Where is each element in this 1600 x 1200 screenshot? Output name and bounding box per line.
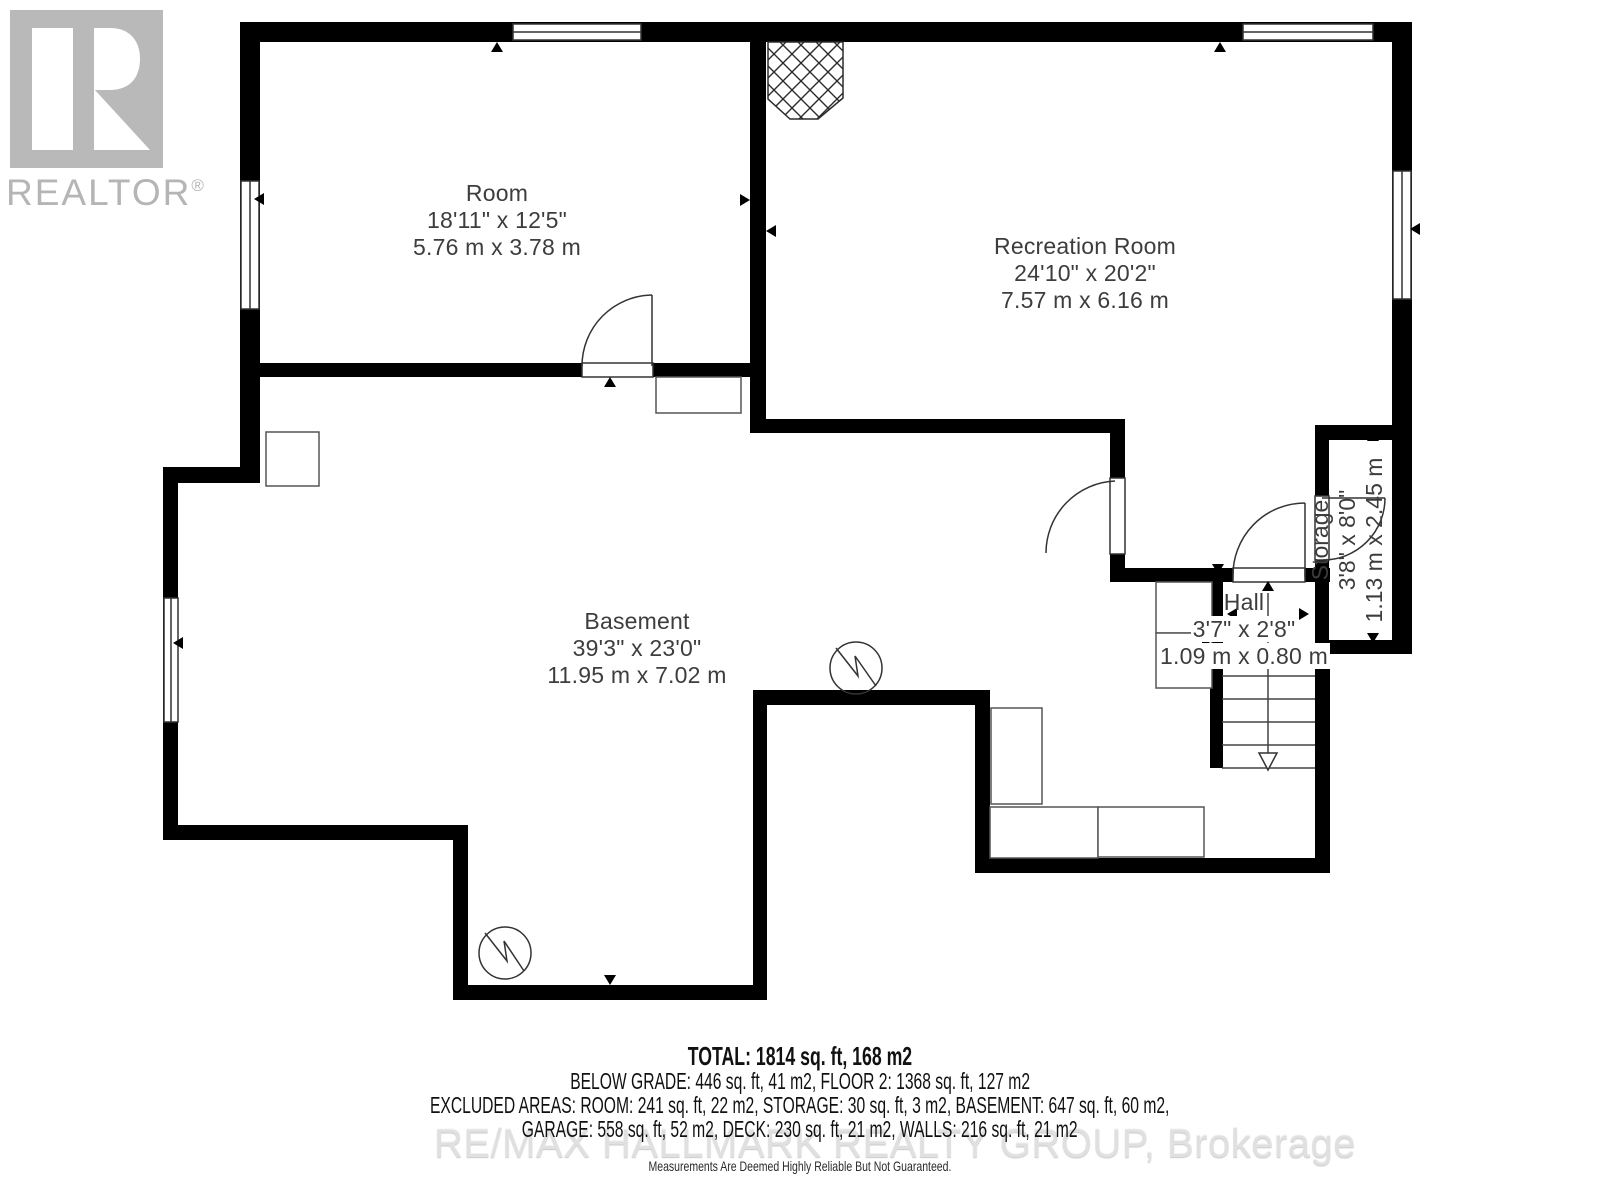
door bbox=[1233, 503, 1305, 582]
registered-trademark-icon: ® bbox=[191, 176, 204, 195]
room-name: Recreation Room bbox=[935, 233, 1235, 260]
door bbox=[582, 295, 653, 377]
room-dim-ft: 24'10" x 20'2" bbox=[935, 260, 1235, 287]
summary-below-grade: BELOW GRADE: 446 sq. ft, 41 m2, FLOOR 2:… bbox=[0, 1070, 1600, 1094]
wall-segment bbox=[163, 825, 468, 840]
fireplace-icon bbox=[768, 42, 843, 119]
fixture-box bbox=[990, 807, 1098, 858]
room-name: Storage bbox=[1307, 430, 1334, 650]
realtor-logo bbox=[10, 10, 163, 168]
wall-segment bbox=[750, 419, 1125, 433]
room-dim-m: 1.13 m x 2.45 m bbox=[1361, 430, 1388, 650]
wall-segment bbox=[240, 22, 1412, 42]
area-summary: TOTAL: 1814 sq. ft, 168 m2 BELOW GRADE: … bbox=[0, 1043, 1600, 1142]
wall-segment bbox=[753, 690, 767, 1000]
room-dim-m: 5.76 m x 3.78 m bbox=[347, 234, 647, 261]
fixture-box bbox=[266, 432, 319, 486]
marker bbox=[1214, 42, 1226, 52]
wall-segment bbox=[1315, 653, 1330, 873]
wall-segment bbox=[753, 690, 990, 705]
room-dim-ft: 3'8" x 8'0" bbox=[1334, 430, 1361, 650]
storage-label: Storage 3'8" x 8'0" 1.13 m x 2.45 m bbox=[1307, 430, 1391, 650]
marker bbox=[604, 377, 616, 387]
realtor-wordmark: REALTOR® bbox=[6, 172, 246, 214]
room-name: Room bbox=[347, 180, 647, 207]
realtor-wordmark-text: REALTOR bbox=[6, 172, 191, 213]
doors bbox=[582, 295, 1385, 582]
room-dim-ft: 39'3" x 23'0" bbox=[487, 635, 787, 662]
fixture-box bbox=[656, 377, 741, 413]
room-dim-ft: 18'11" x 12'5" bbox=[347, 207, 647, 234]
marker bbox=[491, 42, 503, 52]
summary-excluded: EXCLUDED AREAS: ROOM: 241 sq. ft, 22 m2,… bbox=[0, 1094, 1600, 1118]
pump-icon bbox=[479, 927, 531, 979]
fixture-box bbox=[991, 708, 1042, 804]
summary-excluded-2: GARAGE: 558 sq. ft, 52 m2, DECK: 230 sq.… bbox=[0, 1118, 1600, 1142]
wall-segment bbox=[453, 985, 767, 1000]
wall-segment bbox=[975, 858, 1330, 873]
window bbox=[513, 24, 641, 40]
wall-segment bbox=[250, 363, 755, 377]
summary-total: TOTAL: 1814 sq. ft, 168 m2 bbox=[0, 1043, 1600, 1070]
window bbox=[1243, 24, 1373, 40]
window bbox=[1393, 171, 1411, 299]
wall-segment bbox=[453, 825, 468, 1000]
room-dim-m: 7.57 m x 6.16 m bbox=[935, 287, 1235, 314]
wall-segment bbox=[975, 690, 990, 873]
room-label: Room 18'11" x 12'5" 5.76 m x 3.78 m bbox=[347, 180, 647, 261]
fixture-box bbox=[1098, 807, 1204, 857]
walls bbox=[163, 22, 1412, 1000]
recreation-room-label: Recreation Room 24'10" x 20'2" 7.57 m x … bbox=[935, 233, 1235, 314]
window bbox=[164, 598, 178, 722]
marker bbox=[604, 975, 616, 985]
door bbox=[1046, 478, 1125, 554]
basement-label: Basement 39'3" x 23'0" 11.95 m x 7.02 m bbox=[487, 608, 787, 689]
pump-icon bbox=[830, 642, 882, 694]
room-name: Basement bbox=[487, 608, 787, 635]
room-dim-m: 11.95 m x 7.02 m bbox=[487, 662, 787, 689]
floor-plan-page: Room 18'11" x 12'5" 5.76 m x 3.78 m Recr… bbox=[0, 0, 1600, 1200]
disclaimer-text: Measurements Are Deemed Highly Reliable … bbox=[0, 1158, 1600, 1176]
marker bbox=[766, 225, 776, 237]
marker bbox=[740, 194, 750, 206]
wall-segment bbox=[1392, 22, 1412, 654]
